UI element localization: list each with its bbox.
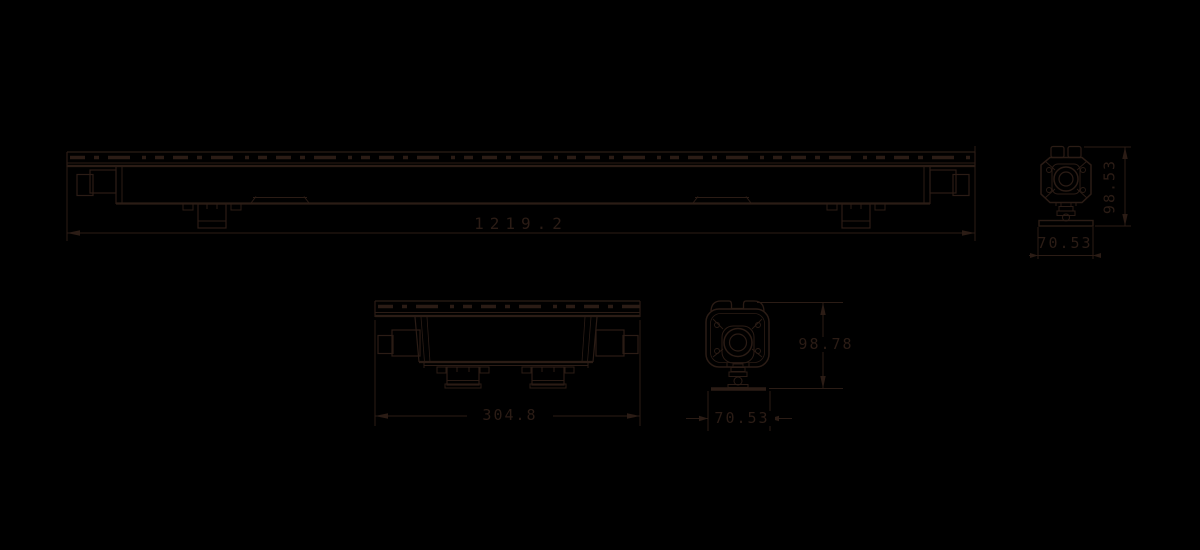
dimension-label-end-b-height: 98.78: [793, 337, 859, 352]
dimension-drawing: [0, 0, 1200, 550]
long-bar-left-connector: [77, 170, 116, 196]
end-view-a-bracket-knuckle: [1057, 207, 1075, 222]
end-view-b: [706, 301, 769, 389]
long-bar-rail: [67, 152, 975, 167]
dimension-label-end-a-width: 70.53: [1037, 236, 1093, 251]
dimension-label-short-bar-length: 304.8: [467, 408, 553, 423]
short-bar-body: [415, 317, 597, 368]
dimension-label-long-bar-length: 1219.2: [461, 216, 581, 231]
lens-inner-circle: [730, 334, 747, 351]
end-view-b-bracket-knuckle: [728, 368, 748, 388]
dimension-label-end-b-width: 70.53: [709, 411, 775, 426]
long-bar-bracket-left: [183, 204, 241, 228]
long-bar-bracket-right: [827, 204, 885, 228]
short-bar-right-connector: [596, 330, 638, 356]
end-view-b-housing: [706, 309, 769, 367]
end-view-b-top-tabs: [711, 301, 764, 312]
dimension-label-end-a-height: 98.53: [1103, 157, 1118, 217]
end-view-a: [1039, 147, 1093, 227]
short-bar-bracket-left: [437, 367, 489, 388]
long-bar-slot-right: [693, 197, 751, 204]
short-bar-side-view: [375, 301, 640, 388]
long-bar-slot-left: [251, 197, 309, 204]
end-view-a-top-tab: [1051, 147, 1064, 158]
end-view-a-top-tab: [1068, 147, 1081, 158]
lens-circle: [1054, 167, 1078, 191]
technical-drawing-canvas: 1219.2 98.53 70.53 304.8 98.78 70.53: [0, 0, 1200, 550]
short-bar-rail: [375, 301, 640, 317]
long-bar-body: [116, 167, 930, 204]
short-bar-left-connector: [378, 330, 420, 356]
lens-inner-circle: [1059, 172, 1073, 186]
lens-circle: [724, 329, 752, 357]
short-bar-bracket-right: [522, 367, 574, 388]
long-bar-right-connector: [930, 170, 969, 196]
